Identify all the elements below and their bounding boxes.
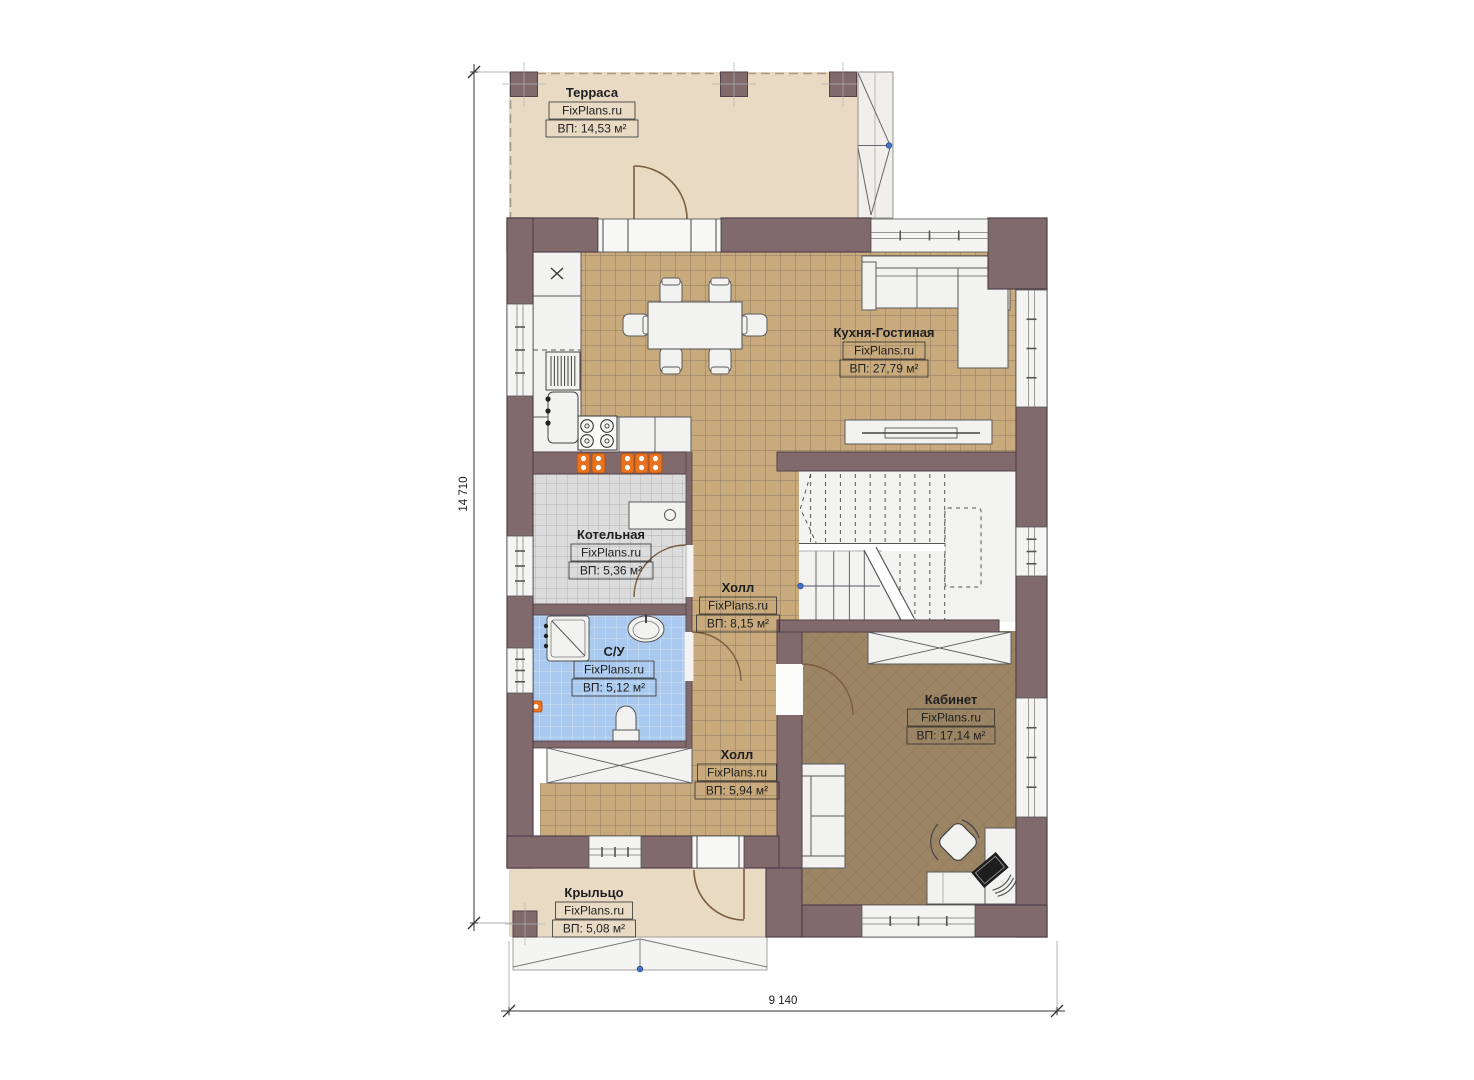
svg-text:FixPlans.ru: FixPlans.ru xyxy=(708,599,768,613)
svg-text:ВП: 5,08 м²: ВП: 5,08 м² xyxy=(563,922,625,936)
svg-text:FixPlans.ru: FixPlans.ru xyxy=(921,711,981,725)
svg-text:Холл: Холл xyxy=(721,747,754,762)
svg-text:Кабинет: Кабинет xyxy=(925,692,978,707)
svg-text:9 140: 9 140 xyxy=(769,995,798,1007)
svg-text:FixPlans.ru: FixPlans.ru xyxy=(581,546,641,560)
svg-text:С/У: С/У xyxy=(603,644,625,659)
svg-text:ВП: 17,14 м²: ВП: 17,14 м² xyxy=(917,729,986,743)
svg-text:14 710: 14 710 xyxy=(458,476,470,511)
svg-text:FixPlans.ru: FixPlans.ru xyxy=(562,104,622,118)
svg-text:Терраса: Терраса xyxy=(566,85,619,100)
svg-text:Кухня-Гостиная: Кухня-Гостиная xyxy=(833,325,934,340)
svg-text:FixPlans.ru: FixPlans.ru xyxy=(584,663,644,677)
svg-text:FixPlans.ru: FixPlans.ru xyxy=(564,904,624,918)
svg-text:ВП: 5,36 м²: ВП: 5,36 м² xyxy=(580,564,642,578)
svg-text:ВП: 5,94 м²: ВП: 5,94 м² xyxy=(706,784,768,798)
svg-text:Крыльцо: Крыльцо xyxy=(564,885,623,900)
svg-text:FixPlans.ru: FixPlans.ru xyxy=(707,766,767,780)
svg-text:Котельная: Котельная xyxy=(577,527,645,542)
svg-text:Холл: Холл xyxy=(722,580,755,595)
svg-text:ВП: 8,15 м²: ВП: 8,15 м² xyxy=(707,617,769,631)
svg-text:FixPlans.ru: FixPlans.ru xyxy=(854,344,914,358)
svg-text:ВП: 27,79 м²: ВП: 27,79 м² xyxy=(850,362,919,376)
svg-text:ВП: 14,53 м²: ВП: 14,53 м² xyxy=(558,122,627,136)
svg-text:ВП: 5,12 м²: ВП: 5,12 м² xyxy=(583,681,645,695)
